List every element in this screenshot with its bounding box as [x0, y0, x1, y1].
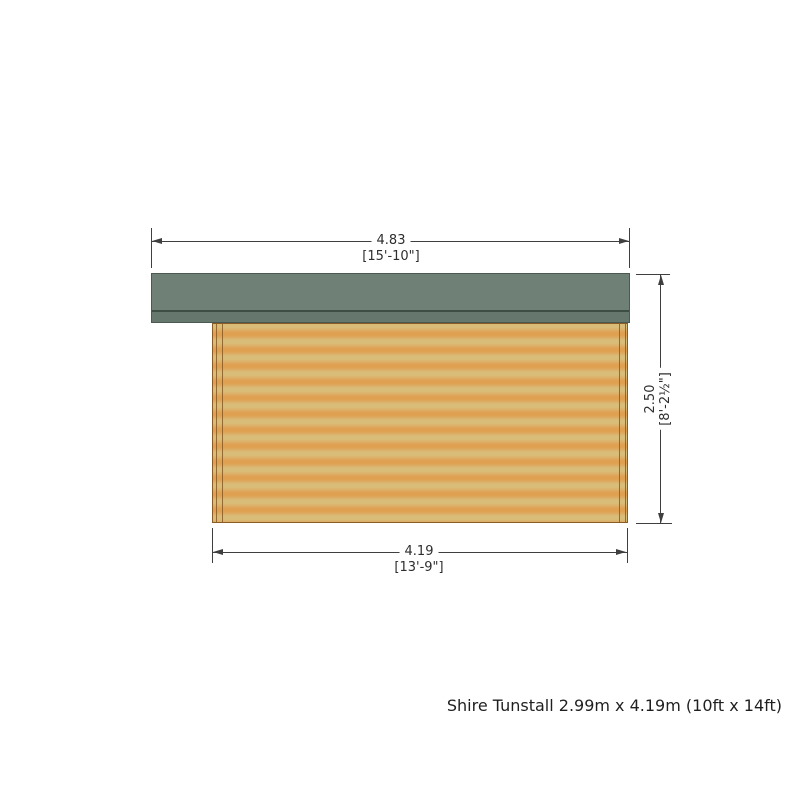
- extension-line: [151, 228, 152, 268]
- arrowhead-left-icon: [152, 238, 162, 244]
- roof-edge-line: [152, 310, 629, 312]
- extension-line: [636, 274, 670, 275]
- arrowhead-right-icon: [619, 238, 629, 244]
- arrowhead-up-icon: [658, 275, 664, 285]
- height-dimension-value: 2.50: [643, 372, 658, 426]
- arrowhead-left-icon: [213, 549, 223, 555]
- wall: [212, 323, 628, 523]
- extension-line: [629, 228, 630, 268]
- right-corner-post-line: [625, 324, 626, 522]
- arrowhead-down-icon: [658, 513, 664, 523]
- arrowhead-right-icon: [616, 549, 626, 555]
- roof-fascia-edge: [152, 312, 629, 322]
- product-caption: Shire Tunstall 2.99m x 4.19m (10ft x 14f…: [447, 696, 782, 715]
- left-corner-post-line: [216, 324, 217, 522]
- extension-line: [212, 528, 213, 563]
- bottom-dimension-value: 4.19: [400, 544, 439, 559]
- extension-line: [627, 528, 628, 563]
- extension-line: [636, 523, 672, 524]
- top-dimension-value: 4.83: [372, 233, 411, 248]
- top-dimension-imperial: [15'-10"]: [357, 249, 424, 264]
- elevation-drawing: 4.83 [15'-10"] 2.50 [8'-2½"] 4.19 [13'-9…: [0, 0, 800, 800]
- left-corner-post-line: [222, 324, 223, 522]
- height-dimension-text: 2.50 [8'-2½"]: [642, 368, 674, 430]
- roof: [151, 273, 630, 323]
- right-corner-post-line: [619, 324, 620, 522]
- bottom-dimension-imperial: [13'-9"]: [389, 560, 448, 575]
- height-dimension-imperial: [8'-2½"]: [658, 372, 673, 426]
